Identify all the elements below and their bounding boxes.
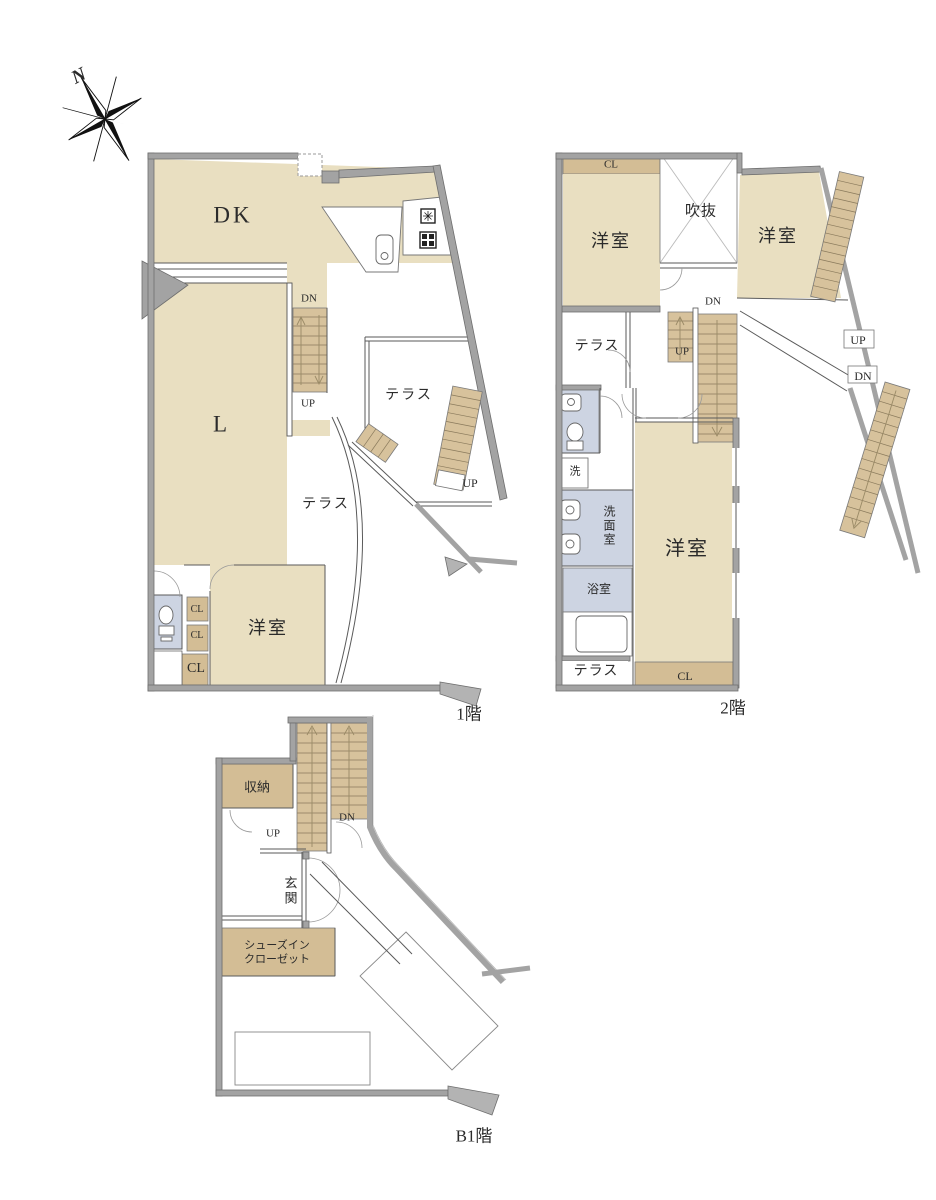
closet-label-bottom-2f: CL (677, 670, 692, 682)
entrance-label-b1: 玄関 (284, 876, 297, 906)
stair-label-outer-dn-2f: DN (854, 370, 871, 382)
bathtub-icon (576, 616, 627, 652)
outer-wall-b1 (216, 758, 222, 1096)
toilet-icon-2f (567, 423, 583, 450)
outer-wall-1f (148, 153, 154, 691)
shoe-closet-label-line2: クローゼット (244, 955, 310, 966)
entry-arrow-b1 (448, 1086, 499, 1115)
floor-plan-b1 (210, 712, 530, 1132)
stair-label-up-2f: UP (675, 347, 689, 358)
room-label-void-2f: 吹抜 (685, 205, 717, 220)
room-label-terrace-upper-1f: テラス (385, 389, 433, 403)
stair-label-up-b1: UP (266, 829, 280, 840)
floor-label-2f: 2階 (720, 700, 746, 717)
closet-label-b-1f: CL (191, 631, 204, 641)
cooktop-icon (420, 232, 436, 248)
stair-label-dn-1f: DN (301, 294, 317, 305)
closet-label-a-1f: CL (191, 605, 204, 615)
room-label-bedroom-1f: 洋室 (248, 619, 288, 637)
floor-label-b1: B1階 (456, 1128, 493, 1145)
room-label-terrace-mid-2f: テラス (575, 340, 620, 354)
parking-space (235, 1032, 370, 1085)
floor-plan-1f (140, 145, 510, 730)
floor-label-1f: 1階 (456, 706, 482, 723)
sink-icon-2f-toilet (561, 394, 581, 411)
closet-label-c-1f: CL (187, 662, 205, 676)
room-label-dk: DK (213, 204, 252, 227)
storage-label-b1: 収納 (244, 781, 270, 794)
room-label-bedroom-nw-2f: 洋室 (591, 232, 631, 250)
stair-label-outer-up-2f: UP (850, 334, 865, 346)
steps-terrace-1f (356, 424, 398, 463)
room-label-bedroom-ne-2f: 洋室 (758, 227, 798, 245)
bathroom-label-2f: 浴室 (587, 583, 611, 595)
shoe-closet-room (222, 928, 335, 976)
stair-label-up-1f: UP (301, 399, 315, 410)
room-label-terrace-bottom-2f: テラス (574, 665, 619, 679)
room-label-terrace-lower-1f: テラス (302, 498, 350, 512)
closet-label-top-2f: CL (604, 160, 618, 171)
floorplan-page: N (0, 0, 936, 1200)
room-label-living: L (213, 413, 227, 436)
shoe-closet-label-line1: シューズイン (244, 941, 309, 952)
stairs-2f-outer-dn (840, 382, 910, 538)
stairs-1f-center (293, 308, 327, 392)
stair-label-dn-b1: DN (339, 813, 355, 824)
outer-wall-2f (556, 153, 562, 688)
laundry-label-2f: 洗 (570, 467, 581, 478)
floor-plan-2f (556, 148, 936, 693)
stair-label-dn-2f: DN (705, 297, 721, 308)
stair-label-outer-up-1f: UP (462, 477, 477, 489)
stove-icon (421, 209, 435, 223)
room-label-bedroom-main-2f: 洋室 (665, 539, 709, 559)
washroom-label-2f: 洗面室 (603, 505, 615, 547)
entry-arrow-1f (440, 682, 481, 706)
